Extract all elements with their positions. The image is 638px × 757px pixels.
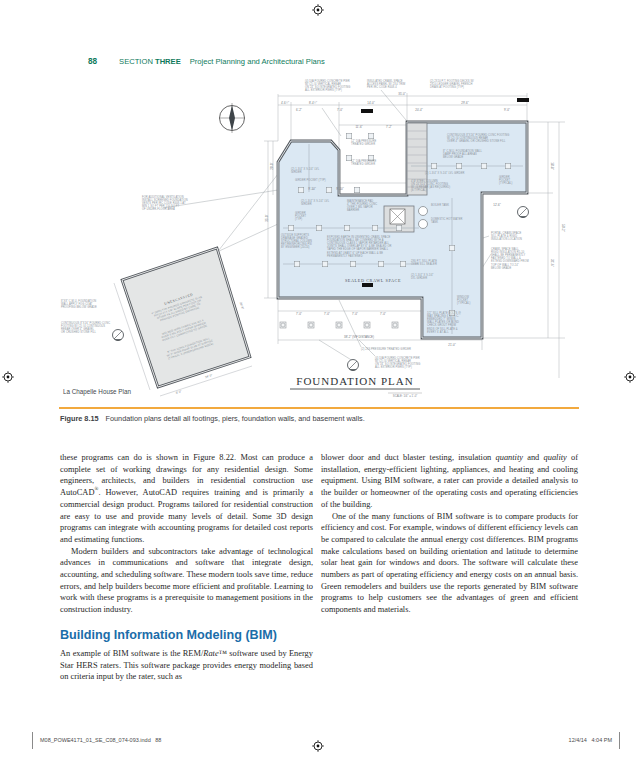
svg-text:BOILER TANK: BOILER TANK <box>431 203 449 207</box>
svg-text:GIRDER: GIRDER <box>301 202 312 206</box>
registration-mark-right <box>624 369 636 381</box>
svg-text:12'-6": 12'-6" <box>493 203 500 207</box>
svg-text:OR CRUSHED STONE FILL: OR CRUSHED STONE FILL <box>61 330 97 334</box>
section-number: THREE <box>155 57 181 66</box>
svg-text:6'-2": 6'-2" <box>296 108 302 112</box>
svg-text:OVER SILL SEALER: OVER SILL SEALER <box>411 262 437 266</box>
page-number: 88 <box>88 57 97 66</box>
boiler-tank-symbol <box>419 207 428 216</box>
registration-mark-left <box>2 369 14 381</box>
svg-text:21'-0": 21'-0" <box>448 343 455 347</box>
svg-text:PROOFING BELOW GRADE: PROOFING BELOW GRADE <box>61 305 97 309</box>
running-header: 88SECTION THREEProject Planning and Arch… <box>88 57 325 66</box>
svg-text:PERMANENTLY FASTENED: PERMANENTLY FASTENED <box>327 254 363 258</box>
footer-filename: M08_POWE4171_01_SE_C08_074-093.indd 88 <box>40 737 161 743</box>
right-column: blower door and duct blaster testing, in… <box>321 452 578 683</box>
svg-text:24'-0": 24'-0" <box>205 373 213 379</box>
svg-text:35'-0": 35'-0" <box>265 214 269 221</box>
svg-text:35'-0": 35'-0" <box>398 92 405 96</box>
drawing-title: FOUNDATION PLAN <box>296 375 413 387</box>
paragraph: Modern builders and subcontractors take … <box>60 546 313 616</box>
paragraph: One of the many functions of BIM softwar… <box>321 511 578 616</box>
svg-text:14'-0": 14'-0" <box>367 101 374 105</box>
svg-text:9'-10": 9'-10" <box>308 187 315 191</box>
plan-source-caption: La Chapelle House Plan <box>63 388 131 395</box>
svg-text:ALL EXTERIOR PIERS (TYP): ALL EXTERIOR PIERS (TYP) <box>375 365 412 369</box>
svg-text:(TYP): (TYP) <box>295 217 302 221</box>
sealed-crawl-space-label: SEALED CRAWL SPACE <box>345 278 401 283</box>
footer-timestamp: 12/4/14 4:04 PM <box>569 737 612 743</box>
svg-text:BELOW GRADE: BELOW GRADE <box>491 266 512 270</box>
svg-text:29'-6": 29'-6" <box>461 101 468 105</box>
body-text: these programs can do is shown in Figure… <box>60 452 578 683</box>
svg-text:(6 TYPICAL): (6 TYPICAL) <box>411 188 427 192</box>
svg-text:GIRDER: GIRDER <box>291 170 302 174</box>
svg-text:4'-6½": 4'-6½" <box>281 101 289 105</box>
foundation-plan-drawing: 4'-6½"8'-4½"14'-0"29'-6"6'-2"7'-0"20'-4"… <box>59 78 579 408</box>
svg-text:9'-0": 9'-0" <box>504 108 510 112</box>
svg-text:DRAIN AT FOOTING (TYP): DRAIN AT FOOTING (TYP) <box>430 85 464 89</box>
svg-text:GIRDER POCKET (TYP): GIRDER POCKET (TYP) <box>295 178 326 182</box>
svg-text:7'-0": 7'-0" <box>296 312 302 316</box>
svg-text:7'-0": 7'-0" <box>337 108 343 112</box>
textbook-page: 88SECTION THREEProject Planning and Arch… <box>0 0 638 757</box>
svg-text:8'-4½": 8'-4½" <box>309 101 317 105</box>
svg-text:7'-0": 7'-0" <box>352 312 358 316</box>
section-word: SECTION <box>119 57 153 66</box>
section-title: Project Planning and Architectural Plans <box>190 57 325 66</box>
svg-text:7'-2": 7'-2" <box>386 125 392 129</box>
svg-text:9'-10": 9'-10" <box>336 187 343 191</box>
svg-text:BELOW GRADE: BELOW GRADE <box>443 155 464 159</box>
water-heater-symbol <box>419 220 428 229</box>
svg-text:BARRIER: BARRIER <box>347 208 359 212</box>
svg-text:8'-0": 8'-0" <box>175 389 182 395</box>
svg-text:7'-0": 7'-0" <box>324 312 330 316</box>
paragraph: blower door and duct blaster testing, in… <box>321 452 578 511</box>
svg-text:(2) 1-3/4" X 9-1/4" LVL GIRDER: (2) 1-3/4" X 9-1/4" LVL GIRDER <box>425 171 465 175</box>
svg-text:TREATED GIRDER: TREATED GIRDER <box>351 162 375 166</box>
svg-text:(TYPICAL): (TYPICAL) <box>499 181 512 185</box>
paragraph: these programs can do is shown in Figure… <box>60 452 313 546</box>
svg-text:18'-8": 18'-8" <box>550 162 554 169</box>
north-arrow-icon <box>219 103 245 133</box>
figure-caption-text: Foundation plans detail all footings, pi… <box>106 414 365 423</box>
registration-mark-top <box>312 2 324 14</box>
svg-text:OF UNDER-FLOOR AREA: OF UNDER-FLOOR AREA <box>142 207 175 211</box>
svg-text:LVL GIRDER: LVL GIRDER <box>411 276 427 280</box>
svg-text:20'-4": 20'-4" <box>415 108 422 112</box>
svg-text:BY ENGINEER (20/24): BY ENGINEER (20/24) <box>281 245 310 249</box>
svg-text:TREATED GIRDER: TREATED GIRDER <box>351 142 375 146</box>
drawing-scale: SCALE: 1/4" = 1'-0" <box>393 394 417 398</box>
bim-heading: Building Information Modeling (BIM) <box>60 628 313 642</box>
svg-text:ALL EXTERIOR PIERS (TYP): ALL EXTERIOR PIERS (TYP) <box>305 88 342 92</box>
svg-text:TANK: TANK <box>431 220 438 224</box>
svg-text:OVER 4" GRAVEL OR CRUSHED STON: OVER 4" GRAVEL OR CRUSHED STONE FILL <box>447 139 506 143</box>
figure-rule <box>59 407 579 409</box>
svg-text:EVERY 6' AT ALL: EVERY 6' AT ALL <box>427 330 449 334</box>
svg-text:PER IRC CODE R408.4: PER IRC CODE R408.4 <box>367 85 397 89</box>
svg-text:38'-2" (VIF DISTANCE): 38'-2" (VIF DISTANCE) <box>344 335 374 339</box>
svg-text:(TYPICAL): (TYPICAL) <box>457 301 470 305</box>
svg-text:31'-6": 31'-6" <box>550 259 554 266</box>
svg-text:20'-0": 20'-0" <box>270 162 274 169</box>
svg-text:26'-8": 26'-8" <box>239 302 245 310</box>
svg-text:11'-6": 11'-6" <box>355 125 362 129</box>
svg-text:INSULATION LOCATION: INSULATION LOCATION <box>491 237 522 241</box>
trim-bar-right <box>619 732 620 749</box>
figure-caption: Figure 8.15Foundation plans detail all f… <box>60 414 365 423</box>
svg-text:7'-0": 7'-0" <box>380 312 386 316</box>
figure-8-15: 4'-6½"8'-4½"14'-0"29'-6"6'-2"7'-0"20'-4"… <box>59 78 579 408</box>
figure-label: Figure 8.15 <box>60 414 99 423</box>
registration-mark-bottom <box>312 738 324 750</box>
trim-bar-left <box>32 732 33 749</box>
paragraph: An example of BIM software is the REM/Ra… <box>60 648 313 683</box>
svg-text:(2) 2X6 PRESSURE TREATED GIRDE: (2) 2X6 PRESSURE TREATED GIRDER <box>361 347 411 351</box>
left-column: these programs can do is shown in Figure… <box>60 452 313 683</box>
svg-text:50'-2": 50'-2" <box>561 224 565 231</box>
garage-unexcavated <box>122 248 250 387</box>
